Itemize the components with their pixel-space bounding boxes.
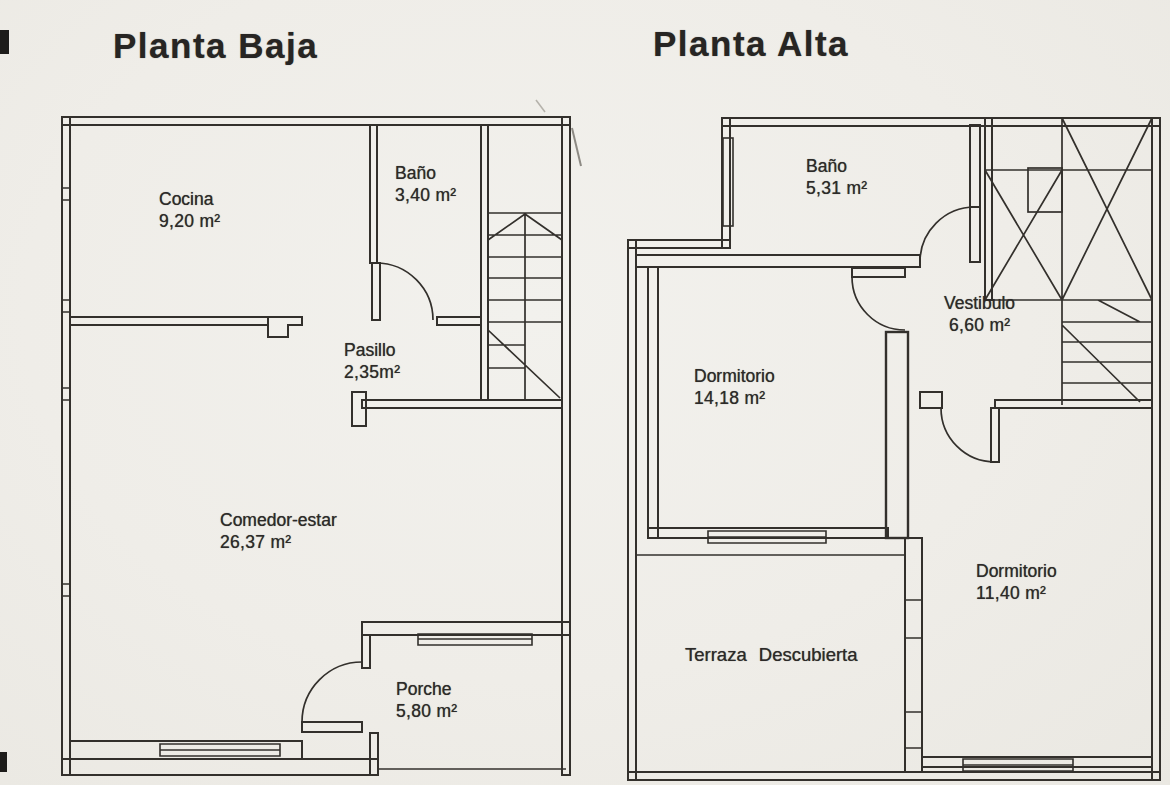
scan-artifact <box>0 30 9 54</box>
plan-title-planta-baja: Planta Baja <box>113 26 318 66</box>
room-name: Terraza Descubierta <box>685 643 858 666</box>
room-label-terraza: Terraza Descubierta <box>685 643 858 666</box>
room-area: 2,35m² <box>344 362 400 384</box>
interior-wall-porch-side <box>370 733 378 775</box>
interior-wall-stairs-bottom <box>362 400 562 408</box>
room-name: Pasillo <box>344 340 400 362</box>
outer-wall-left <box>62 117 70 775</box>
interior-wall-bath-bottom <box>636 255 920 267</box>
room-label-dormitorio-14: Dormitorio 14,18 m² <box>694 366 775 410</box>
interior-wall-bath-right <box>970 125 980 207</box>
room-label-porche: Porche 5,80 m² <box>396 679 457 723</box>
door-leaf <box>302 722 362 732</box>
outer-wall-right <box>1152 118 1160 780</box>
door-arc <box>376 263 433 320</box>
outer-wall-top <box>62 117 570 125</box>
planta-baja-drawing <box>62 117 570 775</box>
interior-wall-porch <box>362 622 570 635</box>
room-label-vestibulo: Vestibulo 6,60 m² <box>944 293 1015 337</box>
room-name: Cocina <box>159 189 220 211</box>
interior-wall-bath <box>370 125 377 263</box>
room-label-pasillo: Pasillo 2,35m² <box>344 340 400 384</box>
room-name: Vestibulo <box>944 293 1015 315</box>
scan-artifact <box>572 128 581 166</box>
staircase-landing-box <box>1028 168 1062 212</box>
outer-wall-step <box>628 240 730 248</box>
outer-wall-left-lower <box>628 240 636 780</box>
staircase-lines <box>488 213 562 400</box>
room-name: Porche <box>396 679 457 701</box>
floor-plan-drawing <box>0 0 1170 785</box>
interior-wall-bath-bottom <box>437 317 481 325</box>
room-label-dormitorio-11: Dormitorio 11,40 m² <box>976 561 1057 605</box>
door-leaf <box>372 263 380 320</box>
interior-wall-stairs-bottom <box>995 400 1152 408</box>
room-name: Baño <box>806 156 867 178</box>
interior-wall-stairs <box>481 125 488 400</box>
room-area: 5,80 m² <box>396 701 457 723</box>
wall-end-step <box>920 392 942 408</box>
room-label-bano-alta: Baño 5,31 m² <box>806 156 867 200</box>
door-arc <box>941 408 995 462</box>
outer-wall-top <box>722 118 1160 126</box>
window-symbol <box>723 138 733 226</box>
room-area: 6,60 m² <box>944 315 1015 337</box>
window-symbol <box>160 744 280 756</box>
door-arc <box>302 662 362 722</box>
window-symbol <box>708 531 826 543</box>
room-name: Dormitorio <box>976 561 1057 583</box>
interior-wall-stairs-left <box>985 118 992 300</box>
room-area: 3,40 m² <box>395 185 456 207</box>
scanned-floor-plan-sheet: Planta Baja Planta Alta Cocina 9,20 m² B… <box>0 0 1170 785</box>
window-symbol <box>963 759 1073 771</box>
room-area: 11,40 m² <box>976 583 1057 605</box>
outer-wall-bottom <box>62 759 378 775</box>
door-leaf <box>852 268 905 277</box>
door-leaf <box>991 408 999 462</box>
room-area: 26,37 m² <box>220 532 337 554</box>
scan-artifact <box>536 100 545 112</box>
room-name: Baño <box>395 163 456 185</box>
room-name: Dormitorio <box>694 366 775 388</box>
planta-alta-drawing <box>628 118 1160 780</box>
outer-wall-right <box>562 117 570 775</box>
room-area: 14,18 m² <box>694 388 775 410</box>
interior-wall-terraza-dorm <box>905 538 922 772</box>
wall-end-step <box>268 317 302 337</box>
room-label-comedor-estar: Comedor-estar 26,37 m² <box>220 510 337 554</box>
outer-wall-bottom <box>628 772 1160 780</box>
staircase-lines <box>985 118 1152 405</box>
door-arc <box>920 207 975 262</box>
interior-wall-dorm14-right <box>886 332 908 538</box>
window-symbol <box>62 188 70 596</box>
door-arc <box>852 277 905 330</box>
interior-wall-dorm14-left <box>648 267 658 538</box>
window-symbol <box>905 600 922 748</box>
room-name: Comedor-estar <box>220 510 337 532</box>
room-label-cocina: Cocina 9,20 m² <box>159 189 220 233</box>
plan-title-planta-alta: Planta Alta <box>653 24 849 64</box>
room-label-bano-baja: Baño 3,40 m² <box>395 163 456 207</box>
scan-artifact <box>0 752 7 772</box>
interior-wall-kitchen <box>70 317 268 325</box>
door-leaf <box>970 207 980 262</box>
wall-jog <box>362 635 370 668</box>
room-area: 9,20 m² <box>159 211 220 233</box>
room-area: 5,31 m² <box>806 178 867 200</box>
